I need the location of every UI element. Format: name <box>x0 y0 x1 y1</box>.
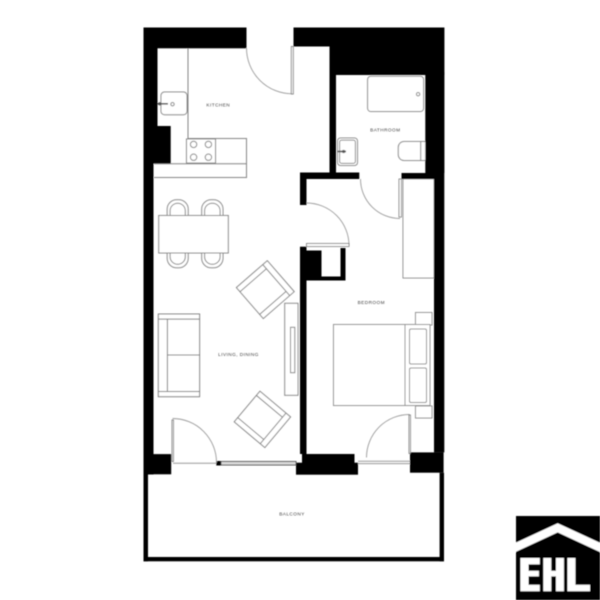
svg-text:KITCHEN: KITCHEN <box>206 103 230 108</box>
svg-text:BALCONY: BALCONY <box>279 512 305 517</box>
svg-text:LIVING, DINING: LIVING, DINING <box>218 352 259 357</box>
svg-text:BATHROOM: BATHROOM <box>370 127 400 132</box>
svg-text:BEDROOM: BEDROOM <box>358 300 385 305</box>
